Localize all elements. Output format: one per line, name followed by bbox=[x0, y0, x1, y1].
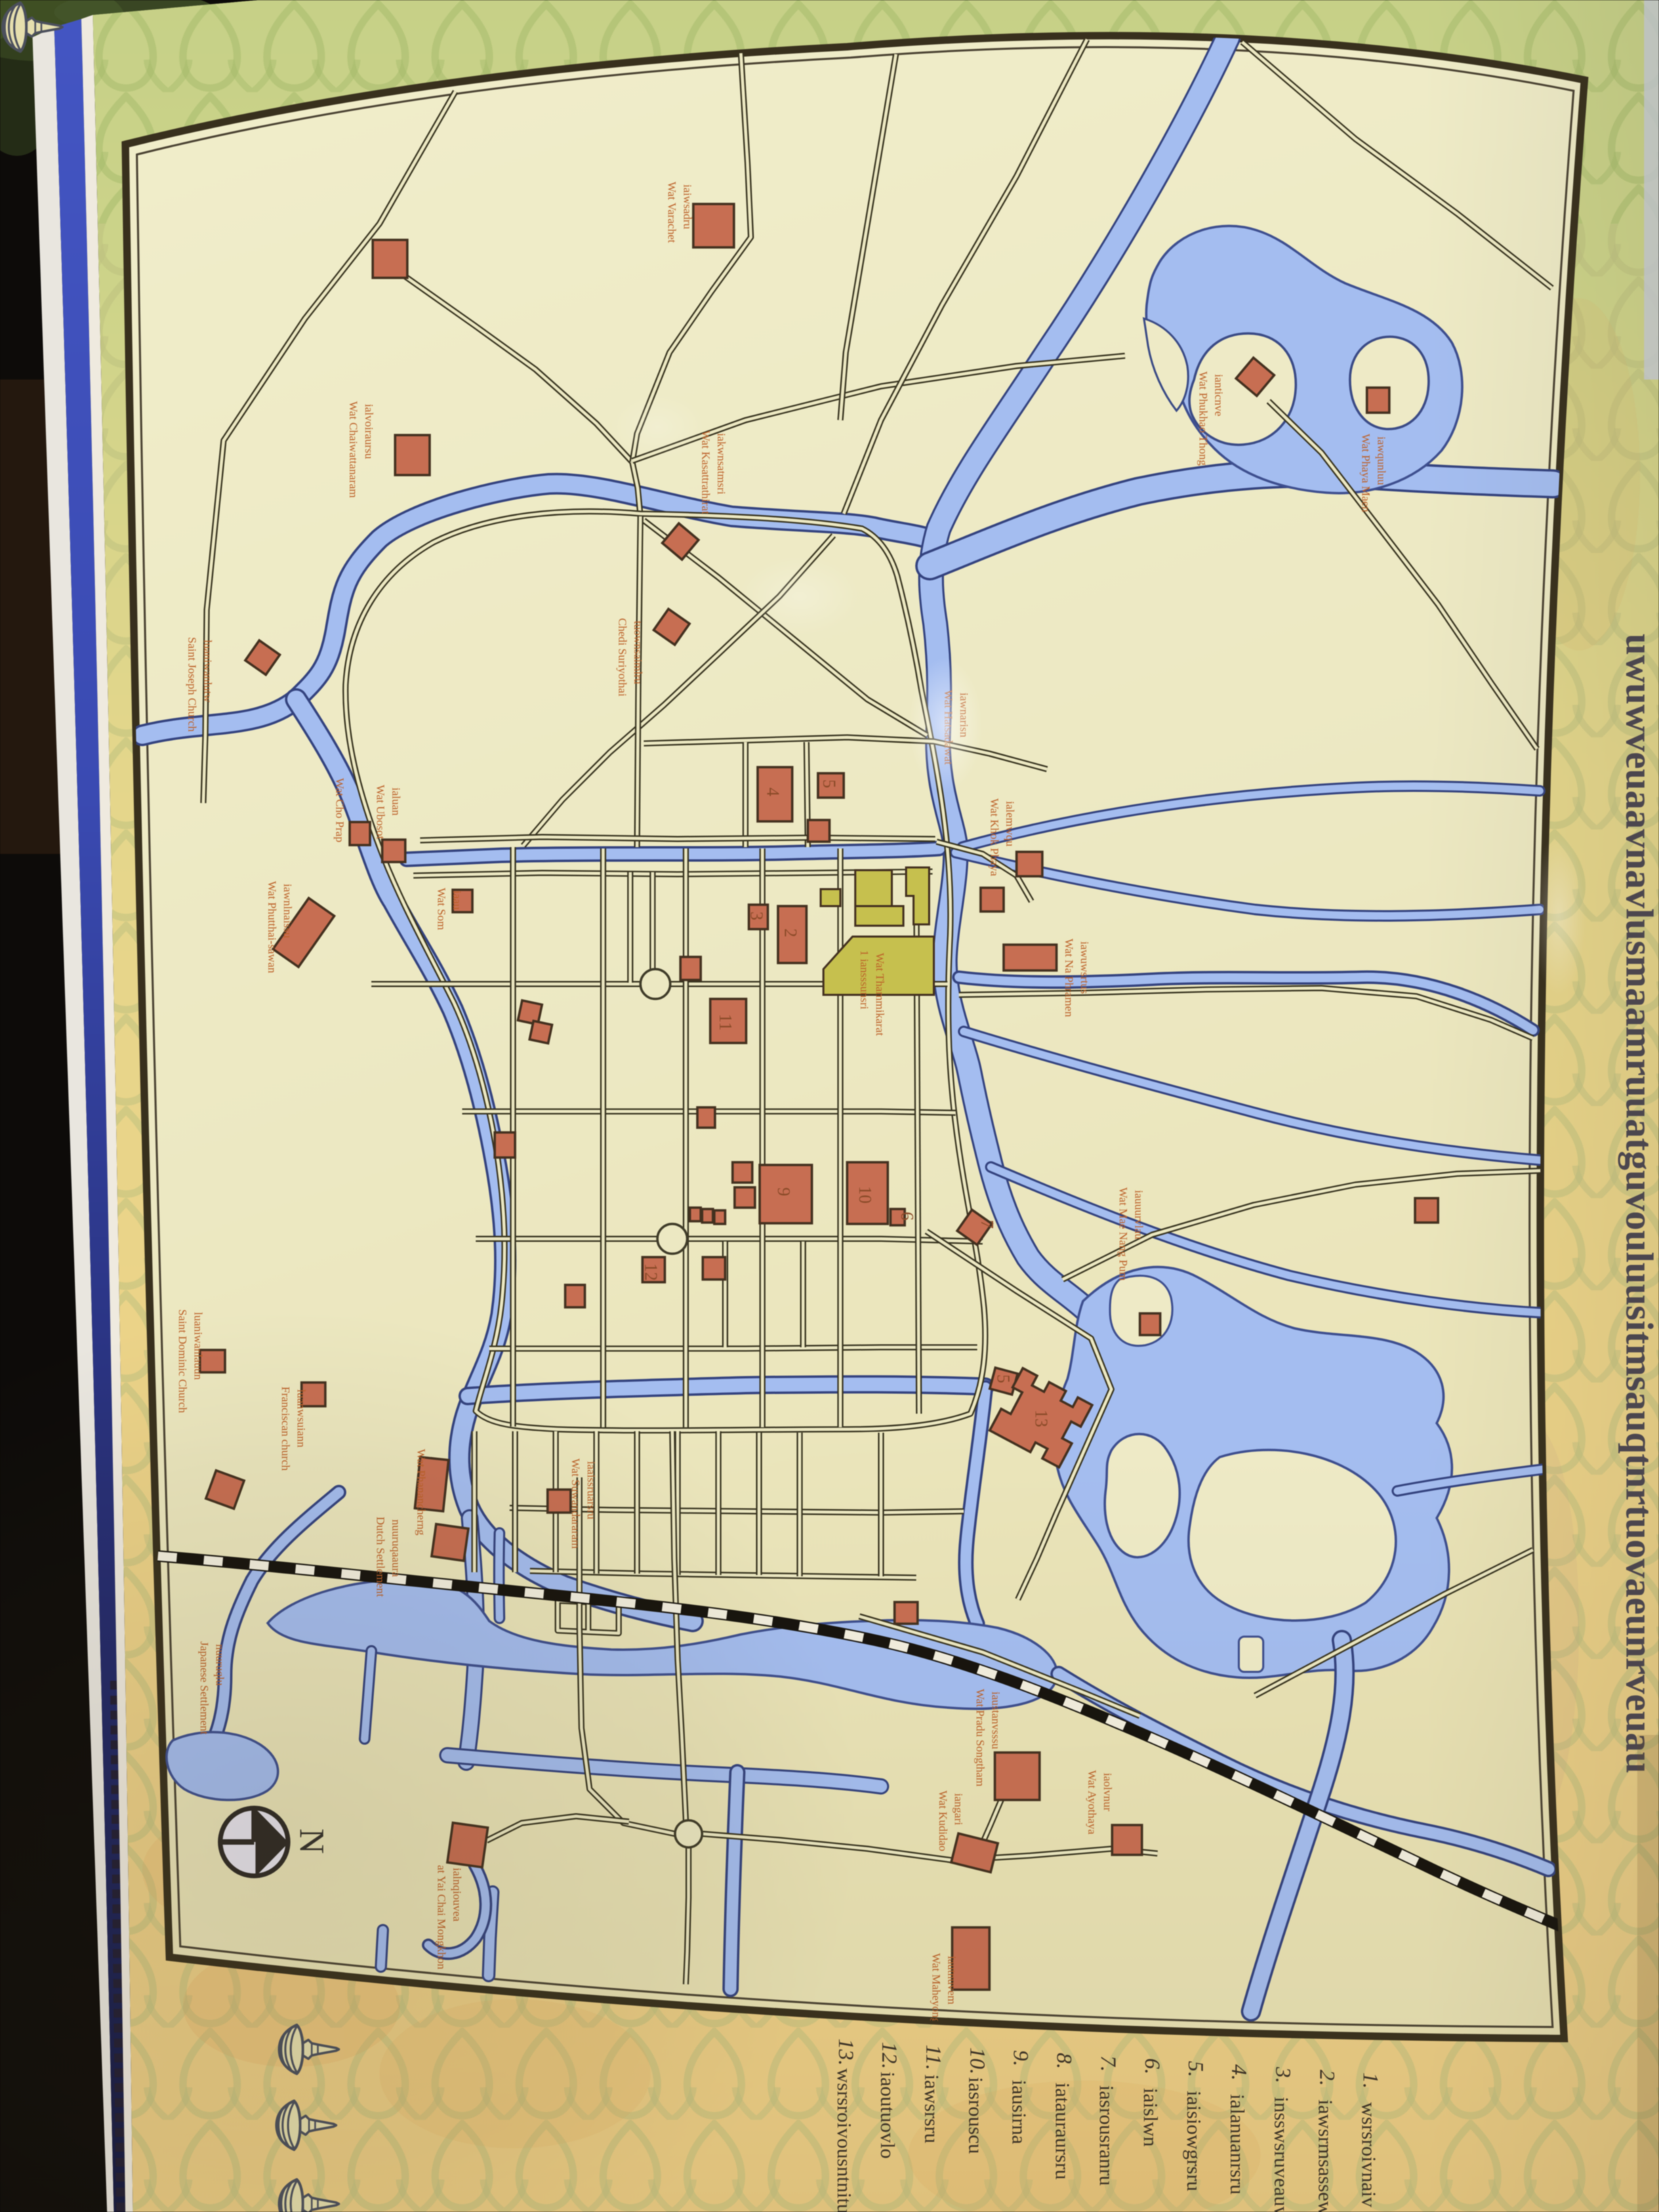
svg-text:tuownsaimlru: tuownsaimlru bbox=[632, 621, 644, 684]
svg-text:2: 2 bbox=[781, 928, 800, 937]
svg-text:Wat Kasattrathirat: Wat Kasattrathirat bbox=[699, 430, 712, 514]
svg-text:iawqunluu: iawqunluu bbox=[1375, 436, 1388, 485]
svg-text:Wat Cho Prap: Wat Cho Prap bbox=[333, 778, 346, 842]
svg-text:ialvoiraursu: ialvoiraursu bbox=[363, 404, 375, 459]
svg-text:Wat Phukhao Thong: Wat Phukhao Thong bbox=[1197, 371, 1210, 466]
svg-text:Wat Som: Wat Som bbox=[435, 888, 448, 930]
svg-text:7: 7 bbox=[977, 1220, 997, 1229]
svg-text:iauuurvlau: iauuurvlau bbox=[1132, 1190, 1145, 1240]
svg-text:Wat Phutthai-sawan: Wat Phutthai-sawan bbox=[266, 881, 279, 974]
svg-text:Wat Varachet: Wat Varachet bbox=[665, 182, 678, 243]
svg-text:luaniwanlutw: luaniwanlutw bbox=[201, 640, 214, 703]
svg-text:iawuwsrtus: iawuwsrtus bbox=[1078, 941, 1091, 994]
svg-text:iakwnsatmsri: iakwnsatmsri bbox=[715, 433, 728, 495]
svg-text:Wat Na Phramen: Wat Na Phramen bbox=[1063, 939, 1076, 1017]
svg-text:Chedi Suriyothai: Chedi Suriyothai bbox=[616, 618, 629, 697]
svg-text:9: 9 bbox=[774, 1187, 794, 1196]
svg-text:Wat Thammikarat: Wat Thammikarat bbox=[874, 953, 886, 1036]
svg-text:11: 11 bbox=[716, 1014, 735, 1031]
svg-text:Wat Mae Nang Pum: Wat Mae Nang Pum bbox=[1117, 1187, 1130, 1281]
svg-text:3: 3 bbox=[747, 912, 766, 920]
svg-text:iawnlnaissu: iawnlnaissu bbox=[281, 884, 294, 939]
svg-text:ialuan: ialuan bbox=[390, 787, 403, 816]
svg-text:5: 5 bbox=[819, 779, 839, 788]
svg-text:4: 4 bbox=[763, 787, 783, 796]
svg-text:Wat Khok Phaya: Wat Khok Phaya bbox=[988, 798, 1001, 876]
svg-text:iaau: iaau bbox=[451, 890, 464, 910]
svg-text:Saint Joseph Church: Saint Joseph Church bbox=[186, 637, 199, 732]
svg-text:5: 5 bbox=[994, 1374, 1013, 1383]
svg-text:ialemwqu: ialemwqu bbox=[1004, 801, 1017, 847]
svg-text:1 iansssunsri: 1 iansssunsri bbox=[858, 950, 871, 1010]
svg-text:12: 12 bbox=[641, 1263, 661, 1281]
svg-text:10: 10 bbox=[855, 1186, 875, 1204]
svg-text:Wat Ubosot: Wat Ubosot bbox=[374, 785, 387, 840]
svg-text:Wat Chaiwattanaram: Wat Chaiwattanaram bbox=[347, 401, 360, 498]
svg-text:ianticnve: ianticnve bbox=[1212, 374, 1225, 416]
svg-text:6: 6 bbox=[897, 1212, 917, 1221]
svg-text:iaiwsadru: iaiwsadru bbox=[681, 184, 694, 230]
svg-text:Wat Phaya Maen: Wat Phaya Maen bbox=[1359, 434, 1372, 512]
